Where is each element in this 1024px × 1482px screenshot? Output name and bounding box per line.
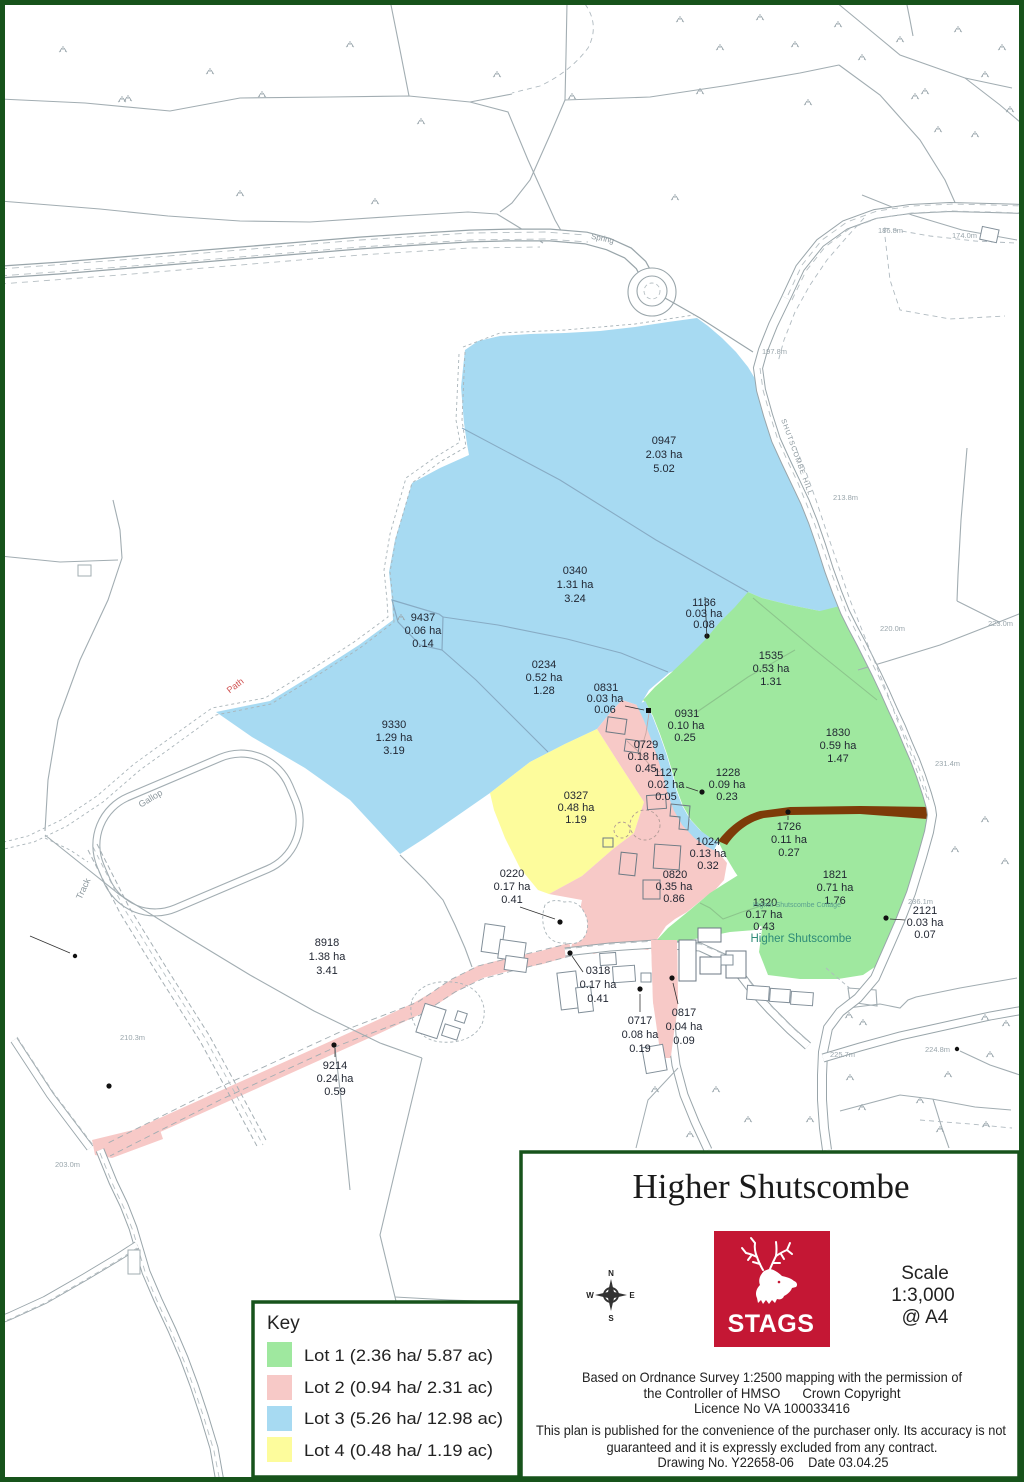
svg-text:0.06: 0.06 <box>594 704 615 716</box>
svg-text:3.24: 3.24 <box>564 593 585 605</box>
svg-text:0931: 0931 <box>675 708 699 720</box>
svg-text:223.0m: 223.0m <box>988 619 1013 628</box>
svg-text:1.19: 1.19 <box>565 814 586 826</box>
svg-text:0.13 ha: 0.13 ha <box>690 848 728 860</box>
svg-text:Lot 3 (5.26 ha/ 12.98 ac): Lot 3 (5.26 ha/ 12.98 ac) <box>304 1409 503 1428</box>
svg-text:0.27: 0.27 <box>778 847 799 859</box>
svg-text:Drawing No. Y22658-06 Date: Drawing No. Y22658-06 Date 03.04.25 <box>658 1454 889 1470</box>
svg-text:1127: 1127 <box>654 767 678 779</box>
svg-text:220.0m: 220.0m <box>880 624 905 633</box>
svg-text:0.52 ha: 0.52 ha <box>526 672 564 684</box>
svg-text:0.24 ha: 0.24 ha <box>317 1073 355 1085</box>
svg-text:0.41: 0.41 <box>587 993 608 1005</box>
svg-text:9330: 9330 <box>382 719 406 731</box>
svg-text:Higher Shutscombe: Higher Shutscombe <box>632 1167 909 1206</box>
svg-text:0220: 0220 <box>500 868 524 880</box>
svg-text:@ A4: @ A4 <box>902 1307 949 1328</box>
svg-text:1.29 ha: 1.29 ha <box>376 732 414 744</box>
svg-text:Licence No VA 100033416: Licence No VA 100033416 <box>694 1400 850 1416</box>
svg-text:0.17 ha: 0.17 ha <box>580 979 618 991</box>
svg-text:1.38 ha: 1.38 ha <box>309 951 347 963</box>
svg-text:9437: 9437 <box>411 612 435 624</box>
svg-text:0.14: 0.14 <box>412 638 433 650</box>
svg-text:0.08: 0.08 <box>693 619 714 631</box>
svg-text:0.25: 0.25 <box>674 732 695 744</box>
svg-text:0.32: 0.32 <box>697 860 718 872</box>
svg-text:0.59 ha: 0.59 ha <box>820 740 858 752</box>
svg-text:5.02: 5.02 <box>653 463 674 475</box>
svg-text:3.19: 3.19 <box>383 745 404 757</box>
svg-text:W: W <box>586 1291 594 1300</box>
svg-text:0.17 ha: 0.17 ha <box>746 909 784 921</box>
svg-text:Lot 2 (0.94 ha/ 2.31 ac): Lot 2 (0.94 ha/ 2.31 ac) <box>304 1378 493 1397</box>
svg-text:1.28: 1.28 <box>533 685 554 697</box>
svg-text:0.10 ha: 0.10 ha <box>668 720 706 732</box>
svg-text:236.1m: 236.1m <box>908 897 933 906</box>
svg-text:203.0m: 203.0m <box>55 1160 80 1169</box>
svg-text:Scale: Scale <box>901 1263 949 1284</box>
svg-text:0.43: 0.43 <box>753 921 774 933</box>
svg-text:210.3m: 210.3m <box>120 1033 145 1042</box>
svg-text:N: N <box>608 1269 614 1278</box>
svg-text:0.06 ha: 0.06 ha <box>405 625 443 637</box>
svg-text:9214: 9214 <box>323 1060 347 1072</box>
svg-text:Higher Shutscombe: Higher Shutscombe <box>751 933 852 945</box>
svg-text:This plan is published for the: This plan is published for the convenien… <box>536 1422 1006 1438</box>
svg-text:1.47: 1.47 <box>827 753 848 765</box>
svg-text:STAGS: STAGS <box>728 1310 815 1338</box>
svg-text:0717: 0717 <box>628 1015 652 1027</box>
svg-text:the Controller of HMSO Cr: the Controller of HMSO Crown Copyright <box>644 1385 901 1401</box>
svg-text:0729: 0729 <box>634 739 658 751</box>
svg-text:1228: 1228 <box>716 767 740 779</box>
svg-text:1535: 1535 <box>759 650 783 662</box>
svg-text:0.17 ha: 0.17 ha <box>494 881 532 893</box>
svg-text:186.8m: 186.8m <box>878 226 903 235</box>
svg-text:231.4m: 231.4m <box>935 759 960 768</box>
svg-text:Key: Key <box>267 1313 300 1334</box>
svg-text:0.59: 0.59 <box>324 1086 345 1098</box>
svg-text:174.0m: 174.0m <box>952 231 977 240</box>
svg-text:197.8m: 197.8m <box>762 347 787 356</box>
svg-text:0318: 0318 <box>586 965 610 977</box>
svg-text:0.09 ha: 0.09 ha <box>709 779 747 791</box>
svg-text:0.03 ha: 0.03 ha <box>907 917 945 929</box>
svg-text:0.35 ha: 0.35 ha <box>656 881 694 893</box>
svg-text:0.86: 0.86 <box>663 893 684 905</box>
svg-text:225.7m: 225.7m <box>830 1050 855 1059</box>
svg-text:E: E <box>629 1291 635 1300</box>
svg-text:2.03 ha: 2.03 ha <box>646 449 684 461</box>
svg-text:0.11 ha: 0.11 ha <box>771 834 808 846</box>
svg-text:1024: 1024 <box>696 836 720 848</box>
svg-text:3.41: 3.41 <box>316 965 337 977</box>
svg-text:0.07: 0.07 <box>914 929 935 941</box>
svg-text:0234: 0234 <box>532 659 556 671</box>
svg-text:0.53 ha: 0.53 ha <box>753 663 791 675</box>
svg-text:224.8m: 224.8m <box>925 1045 950 1054</box>
svg-text:0.02 ha: 0.02 ha <box>648 779 686 791</box>
svg-text:1821: 1821 <box>823 869 847 881</box>
svg-text:0817: 0817 <box>672 1007 696 1019</box>
svg-text:Higher Shutscombe Cottage: Higher Shutscombe Cottage <box>753 902 841 909</box>
svg-text:0.19: 0.19 <box>629 1043 650 1055</box>
svg-text:Lot 4 (0.48 ha/ 1.19 ac): Lot 4 (0.48 ha/ 1.19 ac) <box>304 1441 493 1460</box>
svg-text:0.09: 0.09 <box>673 1035 694 1047</box>
svg-text:0.04 ha: 0.04 ha <box>666 1021 704 1033</box>
svg-text:0.08 ha: 0.08 ha <box>622 1029 660 1041</box>
svg-text:0.41: 0.41 <box>501 894 522 906</box>
svg-text:213.8m: 213.8m <box>833 493 858 502</box>
svg-text:0.23: 0.23 <box>716 791 737 803</box>
svg-text:0.71 ha: 0.71 ha <box>817 882 855 894</box>
svg-text:1.31 ha: 1.31 ha <box>557 579 595 591</box>
svg-text:S: S <box>608 1314 614 1323</box>
svg-text:0947: 0947 <box>652 435 676 447</box>
svg-text:8918: 8918 <box>315 937 339 949</box>
svg-text:1.31: 1.31 <box>760 676 781 688</box>
svg-text:1830: 1830 <box>826 727 850 739</box>
svg-text:Lot 1 (2.36 ha/ 5.87 ac): Lot 1 (2.36 ha/ 5.87 ac) <box>304 1346 493 1365</box>
svg-text:Based on Ordnance Survey 1:250: Based on Ordnance Survey 1:2500 mapping … <box>582 1369 962 1385</box>
svg-text:0.48 ha: 0.48 ha <box>558 802 596 814</box>
svg-text:0340: 0340 <box>563 565 587 577</box>
svg-text:0.05: 0.05 <box>655 791 676 803</box>
svg-text:1:3,000: 1:3,000 <box>891 1285 954 1306</box>
svg-text:2121: 2121 <box>913 905 937 917</box>
svg-text:1726: 1726 <box>777 821 801 833</box>
svg-text:0.18 ha: 0.18 ha <box>628 751 666 763</box>
svg-text:0327: 0327 <box>564 790 588 802</box>
svg-text:guaranteed and it is expressly: guaranteed and it is expressly excluded … <box>607 1439 938 1455</box>
svg-text:0820: 0820 <box>663 869 687 881</box>
